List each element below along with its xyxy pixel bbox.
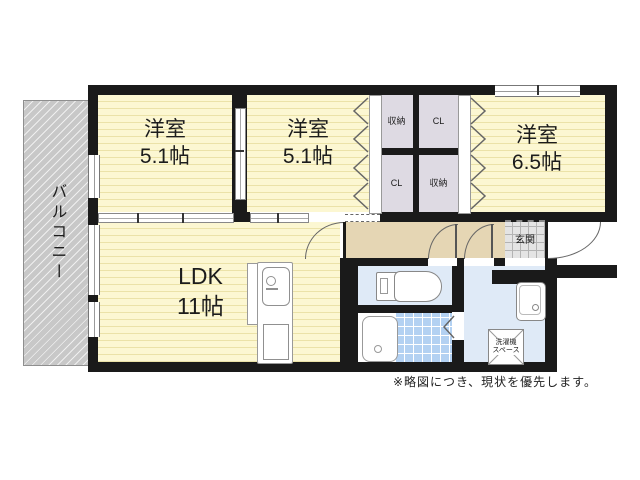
- bedroom-1-size: 5.1帖: [140, 143, 190, 170]
- bedroom-3-size: 6.5帖: [512, 149, 562, 176]
- bedroom-1-label: 洋室 5.1帖: [98, 112, 232, 174]
- wall-hall-bottom-1: [340, 258, 428, 266]
- wall-ldk-wetblock: [340, 258, 358, 372]
- ldk-label: LDK 11帖: [98, 262, 303, 322]
- wall-top-left: [88, 85, 495, 95]
- entrance-label: 玄関: [505, 222, 545, 258]
- wall-right-top: [605, 85, 617, 222]
- door-leaf-ldk: [343, 222, 346, 258]
- door-arc-entrance: [548, 222, 601, 259]
- closet-top-left-label: 収納: [380, 95, 413, 148]
- washbasin-inner: [519, 285, 541, 315]
- wall-left-2: [88, 198, 98, 225]
- wall-bottom: [88, 362, 557, 372]
- sliding-door-bedroom2-ldk: [250, 213, 309, 223]
- bedroom-1-name: 洋室: [144, 116, 186, 143]
- floorplan-canvas: バルコニー: [0, 0, 640, 480]
- window-tick: [537, 85, 539, 95]
- wall-toilet-bath: [358, 305, 452, 313]
- sliding-door-tick: [235, 150, 244, 152]
- bathtub: [362, 316, 398, 362]
- wall-closet-horizontal: [380, 148, 458, 155]
- washbasin-faucet-icon: [532, 304, 539, 311]
- closet-top-right-label: CL: [419, 95, 458, 148]
- ldk-name: LDK: [178, 262, 223, 292]
- door-leaf-toilet: [455, 224, 457, 258]
- balcony-label-text: バルコニー: [46, 183, 67, 283]
- balcony-area: バルコニー: [23, 100, 89, 366]
- laundry-label-line2: スペース: [492, 347, 519, 355]
- closet-bottom-right-label: 収納: [419, 155, 458, 212]
- toilet-bowl: [394, 271, 442, 302]
- closet-bottom-left-label: CL: [380, 155, 413, 212]
- sliding-door-bedroom1-bedroom2: [235, 108, 246, 200]
- sliding-door-tick: [137, 213, 139, 223]
- door-leaf-entrance: [545, 222, 548, 258]
- disclaimer-note: ※略図につき、現状を優先します。: [393, 373, 597, 390]
- wall-bath-washroom: [452, 340, 464, 362]
- bedroom-2-size: 5.1帖: [283, 143, 333, 170]
- laundry-label-line1: 洗濯機: [496, 339, 517, 347]
- bedroom-2-name: 洋室: [287, 116, 329, 143]
- bathtub-drain-icon: [374, 345, 382, 353]
- laundry-space-label: 洗濯機 スペース: [489, 330, 523, 364]
- folding-door-bath-icon: [443, 315, 455, 339]
- toilet-tank-detail: [380, 278, 388, 294]
- wall-washroom-right: [545, 258, 557, 372]
- sliding-door-bedroom1-ldk: [98, 213, 234, 223]
- wall-left-3: [88, 295, 98, 302]
- kitchen-stove: [263, 324, 289, 360]
- wall-toilet-washroom: [452, 266, 464, 312]
- wall-hall-bottom-2: [457, 258, 464, 266]
- door-leaf-washroom: [491, 224, 493, 258]
- balcony-label: バルコニー: [24, 101, 88, 365]
- wall-rooms-bottom: [380, 212, 617, 222]
- bedroom-3-label: 洋室 6.5帖: [469, 118, 605, 180]
- bedroom-3-name: 洋室: [516, 122, 558, 149]
- laundry-space-box: 洗濯機 スペース: [488, 329, 524, 365]
- bedroom-2-label: 洋室 5.1帖: [247, 112, 369, 174]
- sliding-door-tick: [277, 213, 279, 223]
- sliding-door-tick: [182, 213, 184, 223]
- hall-top-opening-dashed: [345, 214, 380, 222]
- ldk-size: 11帖: [177, 292, 224, 322]
- wall-divider-stub: [232, 212, 250, 222]
- wall-left-1: [88, 85, 98, 155]
- wall-hall-bottom-3: [494, 258, 505, 266]
